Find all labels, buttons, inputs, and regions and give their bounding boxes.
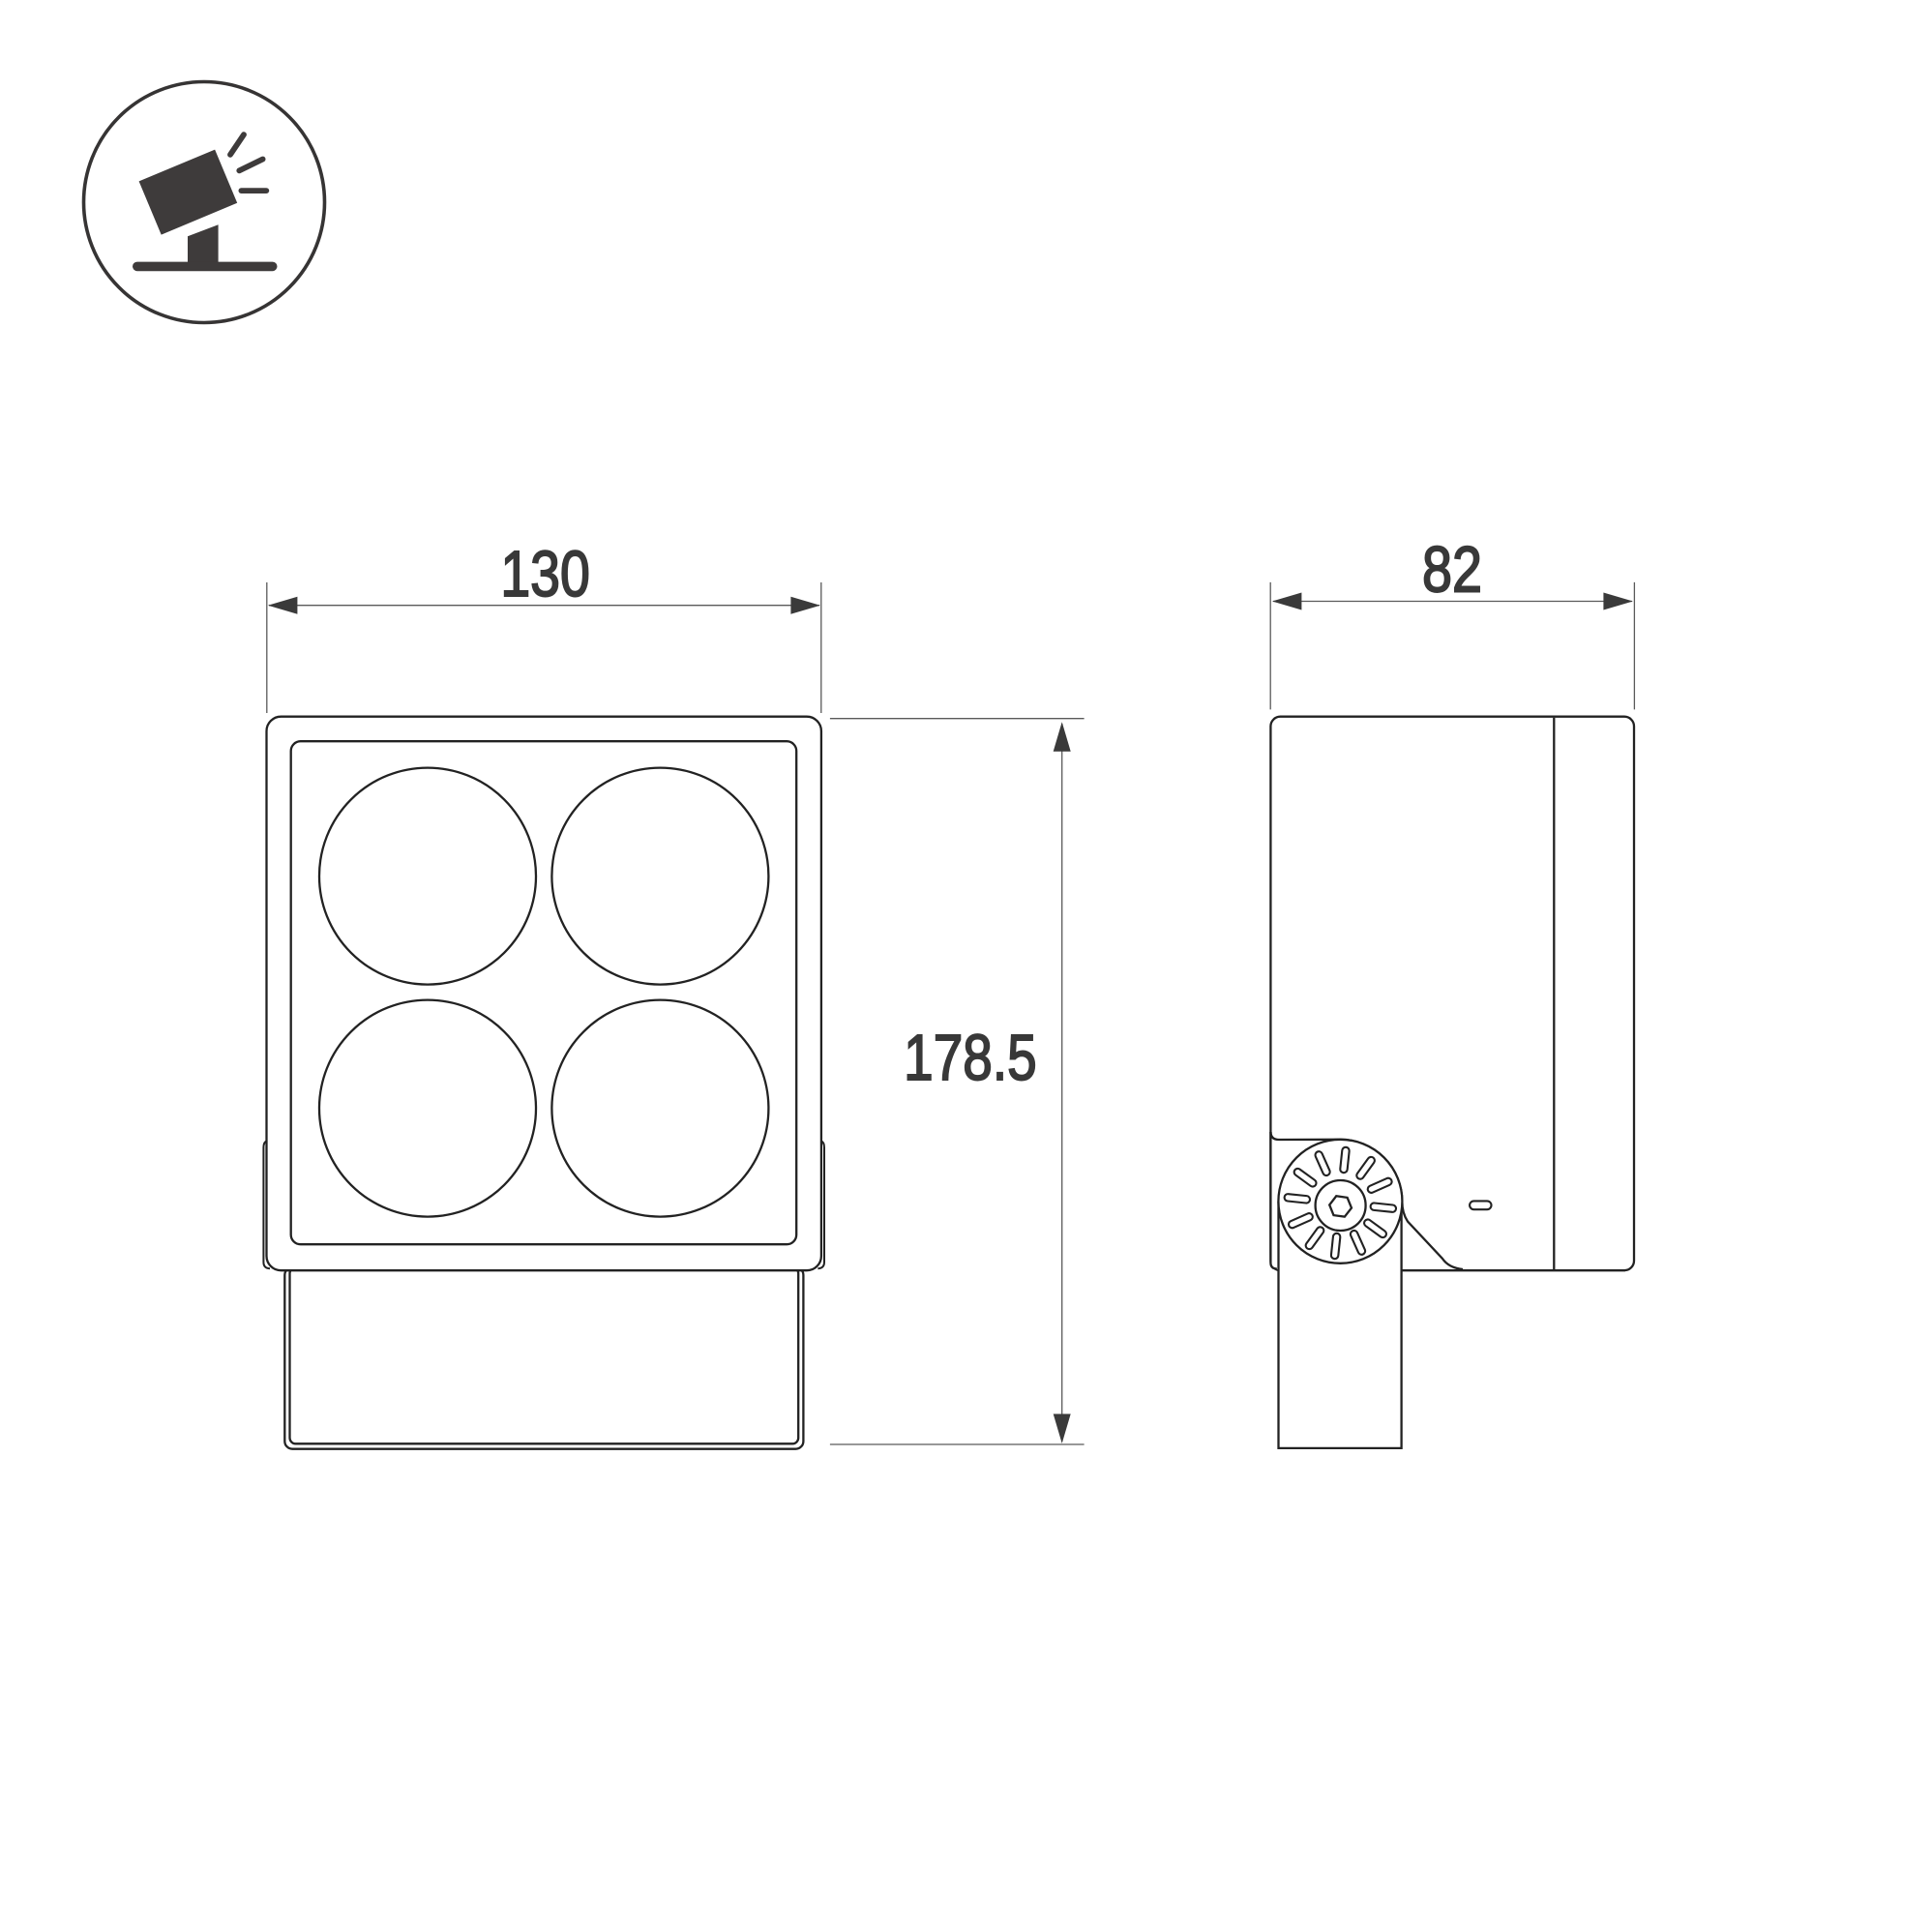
svg-text:82: 82 bbox=[1422, 533, 1482, 606]
svg-text:130: 130 bbox=[500, 538, 590, 610]
svg-text:178.5: 178.5 bbox=[904, 1022, 1037, 1094]
